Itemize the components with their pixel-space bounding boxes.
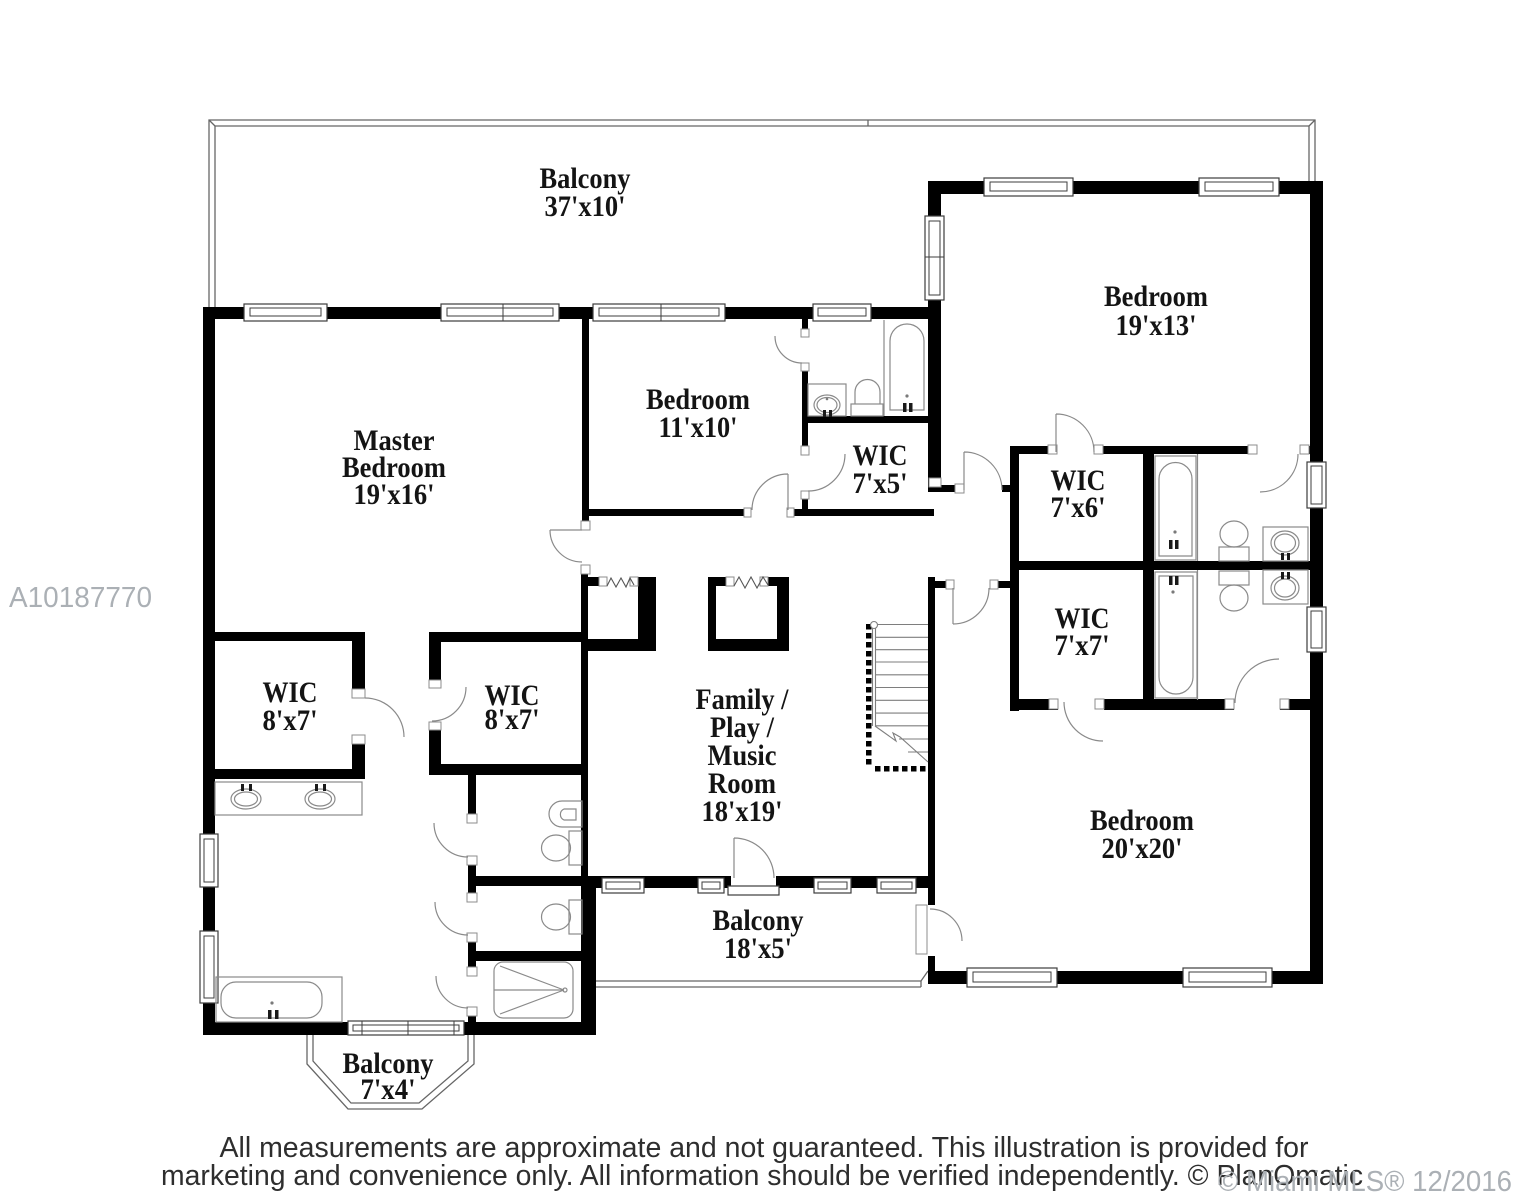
svg-text:19'x16': 19'x16': [354, 478, 435, 511]
svg-text:7'x5': 7'x5': [853, 467, 908, 500]
svg-text:37'x10': 37'x10': [545, 190, 626, 223]
svg-text:18'x5': 18'x5': [724, 932, 792, 965]
svg-text:8'x7': 8'x7': [263, 704, 318, 737]
svg-text:© Miami MLS® 12/2016: © Miami MLS® 12/2016: [1218, 1166, 1512, 1198]
svg-text:A10187770: A10187770: [9, 582, 152, 614]
svg-text:7'x7': 7'x7': [1055, 629, 1110, 662]
svg-text:7'x4': 7'x4': [361, 1073, 416, 1106]
svg-text:8'x7': 8'x7': [485, 703, 540, 736]
svg-text:11'x10': 11'x10': [659, 411, 738, 444]
svg-text:18'x19': 18'x19': [702, 795, 783, 828]
svg-text:7'x6': 7'x6': [1051, 491, 1106, 524]
svg-text:marketing and convenience only: marketing and convenience only. All info…: [161, 1160, 1363, 1192]
svg-text:19'x13': 19'x13': [1116, 309, 1197, 342]
svg-text:20'x20': 20'x20': [1102, 832, 1183, 865]
